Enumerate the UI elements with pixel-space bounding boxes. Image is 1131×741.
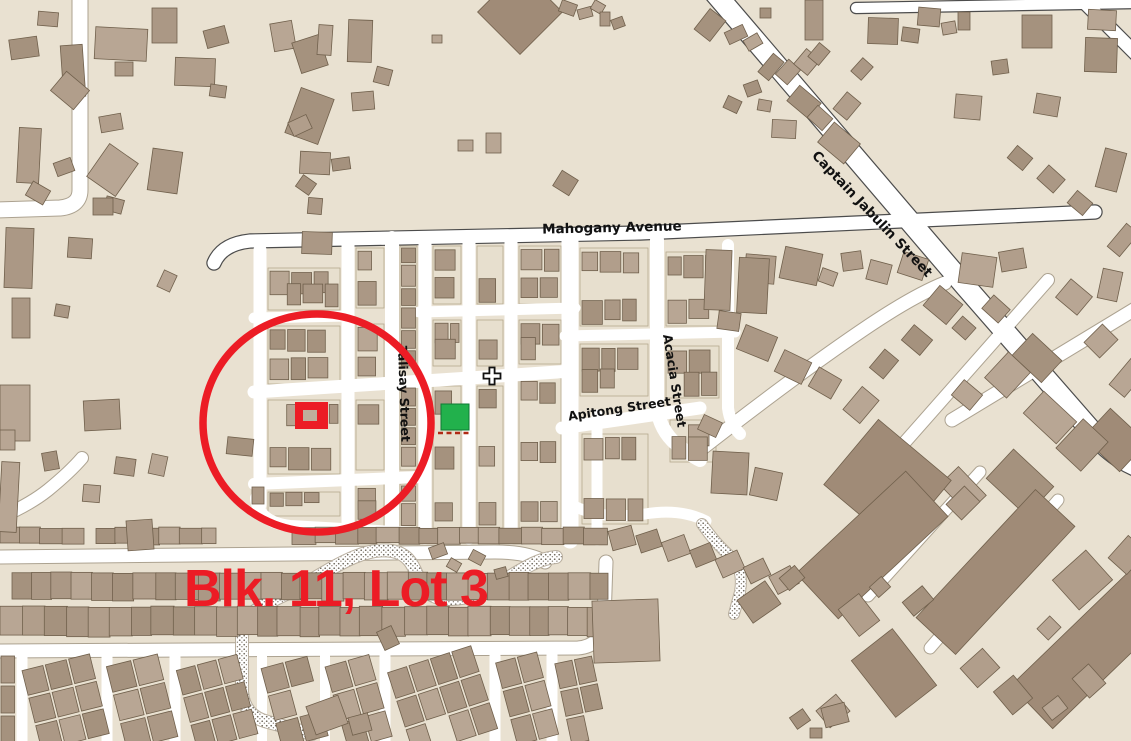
street-label-mahogany-avenue: Mahogany Avenue xyxy=(542,218,682,237)
annotation-lot-marker xyxy=(295,402,328,429)
map-canvas[interactable]: Mahogany Avenue Captain Jabulin Street T… xyxy=(0,0,1131,741)
highlighted-building xyxy=(438,404,472,433)
map-viewport[interactable]: Mahogany Avenue Captain Jabulin Street T… xyxy=(0,0,1131,741)
highlighted-building-rect xyxy=(441,404,469,430)
annotation-label: Blk. 11, Lot 3 xyxy=(184,560,488,618)
